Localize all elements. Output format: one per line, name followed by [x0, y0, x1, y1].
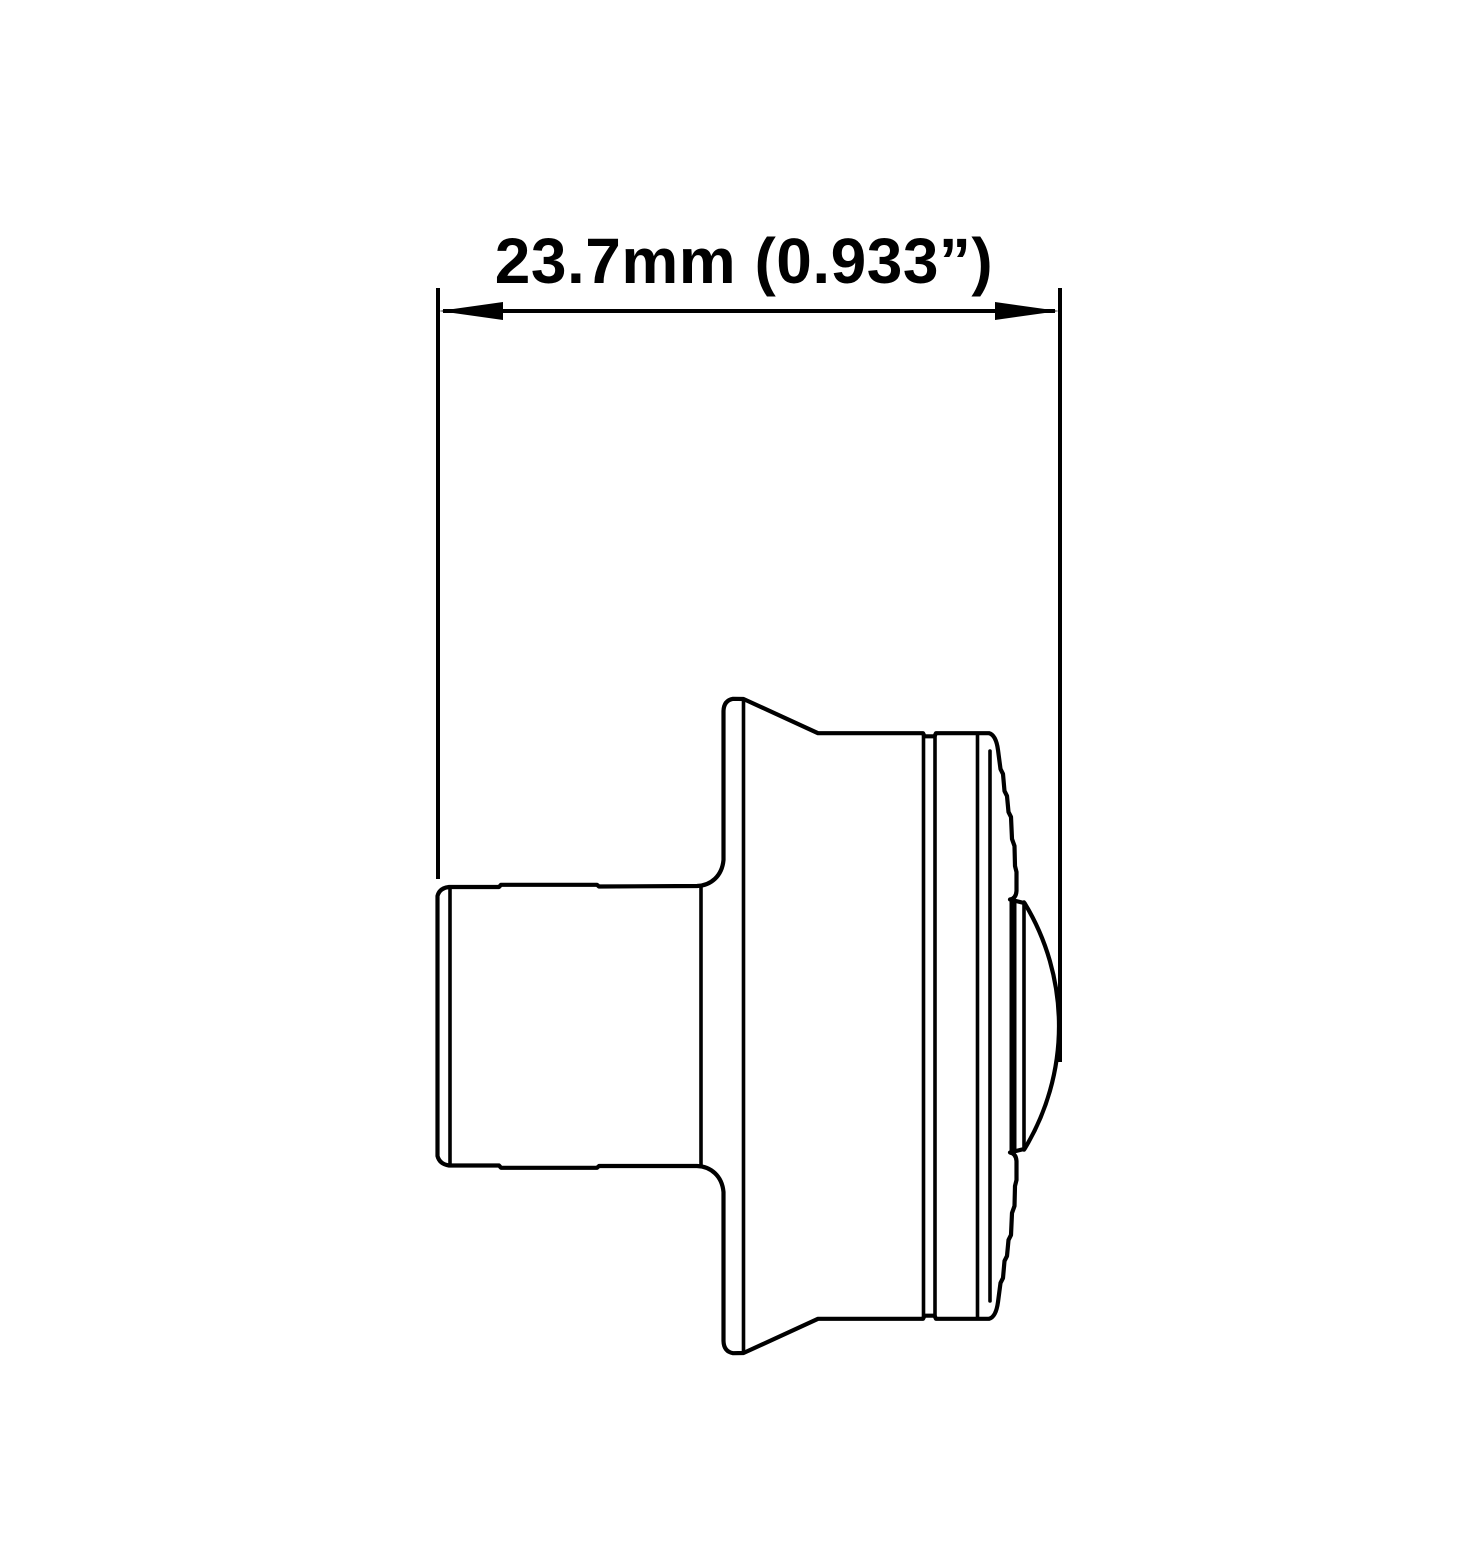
- lens-dimension-drawing: 23.7mm (0.933”): [0, 0, 1481, 1565]
- dimension-annotation: 23.7mm (0.933”): [438, 225, 1060, 1062]
- lens-silhouette-outline: [438, 699, 1060, 1353]
- dimension-label: 23.7mm (0.933”): [495, 225, 993, 297]
- arrowhead-right-icon: [995, 302, 1059, 320]
- arrowhead-left-icon: [439, 302, 503, 320]
- lens-side-view: [438, 699, 1060, 1353]
- technical-drawing-page: 23.7mm (0.933”): [0, 0, 1481, 1565]
